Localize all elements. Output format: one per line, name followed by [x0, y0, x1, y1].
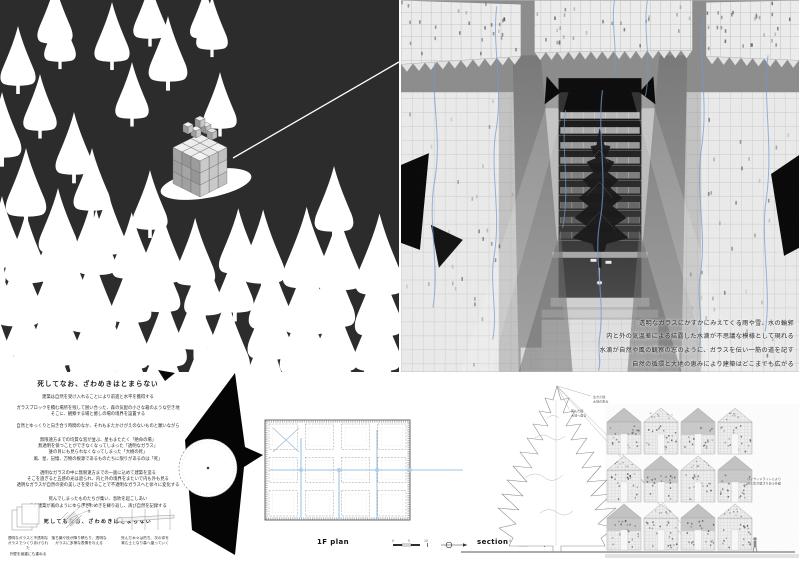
interior-rendering-panel: 透明なガラスにかすかにみえてくる雨や雪、水の輪郭 内と外の気温差による結露した水…: [401, 0, 799, 372]
caption-line: 外壁を幾重にも重ねる: [6, 552, 50, 557]
scale-number: 10: [424, 539, 428, 543]
caption-line: ガラスでつくりあげられた: [6, 541, 50, 551]
caption-line: ガラスに多様な表情を与える: [48, 541, 110, 546]
forest-illustration-panel: [0, 0, 399, 372]
caption-line: 育む土となり森へ還っていく: [112, 541, 178, 546]
caption-line: 内と外の気温差による結露した水滴が不思議な模様として現れる: [524, 330, 794, 343]
diagram-note: 落ち葉: [83, 502, 92, 507]
houses-annotation: 光と影が混ざりあう外壁: [747, 481, 781, 486]
tree-trunk-dot: [207, 467, 210, 470]
diagram-caption: 落ち葉や枝が降り積もり、透明な ガラスに多様な表情を与える: [48, 536, 110, 546]
scale-number: 0: [392, 539, 394, 543]
section-drawing: 生きた樹 大地の恵み 死んだ樹 大地へ還る ハイサイドライトにより 光と影が混ざ…: [455, 378, 799, 566]
diagram-caption: 死んだ木々は朽ち、次の命を 育む土となり森へ還っていく: [112, 536, 178, 546]
scale-number: 5: [408, 539, 410, 543]
plan-label: 1F plan: [317, 538, 349, 546]
diagram-caption: 透明なガラスと不透明な ガラスでつくりあげられた 外壁を幾重にも重ねる: [6, 536, 50, 557]
houses-annotation: ハイサイドライトにより: [747, 476, 781, 481]
section-tree: [498, 386, 616, 552]
fallen-leaves-diagram: 落ち葉 枝: [58, 502, 94, 534]
glass-layers-diagram: [10, 502, 40, 534]
tree-annotation: 大地へ還る: [571, 413, 586, 418]
tree-annotation: 死んだ樹: [571, 408, 583, 413]
first-floor-plan: [253, 386, 473, 536]
caption-line: 透明なガラスにかすかにみえてくる雨や雪、水の輪郭: [524, 317, 794, 330]
tree-annotation: 生きた樹: [593, 394, 605, 399]
rendering-caption-block: 透明なガラスにかすかにみえてくる雨や雪、水の輪郭 内と外の気温差による結露した水…: [524, 317, 794, 372]
mini-diagrams: 透明なガラスと不透明な ガラスでつくりあげられた 外壁を幾重にも重ねる 落ち葉 …: [6, 502, 182, 564]
forest-illustration: [0, 0, 399, 372]
caption-line: 水滴が自然や風の観察の窓のように、ガラスを伝い一筋の道を記す: [524, 344, 794, 357]
decay-log-diagram: [114, 508, 178, 532]
tree-annotation: 大地の恵み: [593, 399, 608, 404]
ground-shadow: [605, 554, 799, 558]
caption-line: 自然の循環と大地の恵みにより建築はどこまでも広がる: [524, 358, 794, 371]
presentation-board: 透明なガラスにかすかにみえてくる雨や雪、水の輪郭 内と外の気温差による結露した水…: [0, 0, 799, 566]
diagram-note: 枝: [88, 508, 91, 513]
